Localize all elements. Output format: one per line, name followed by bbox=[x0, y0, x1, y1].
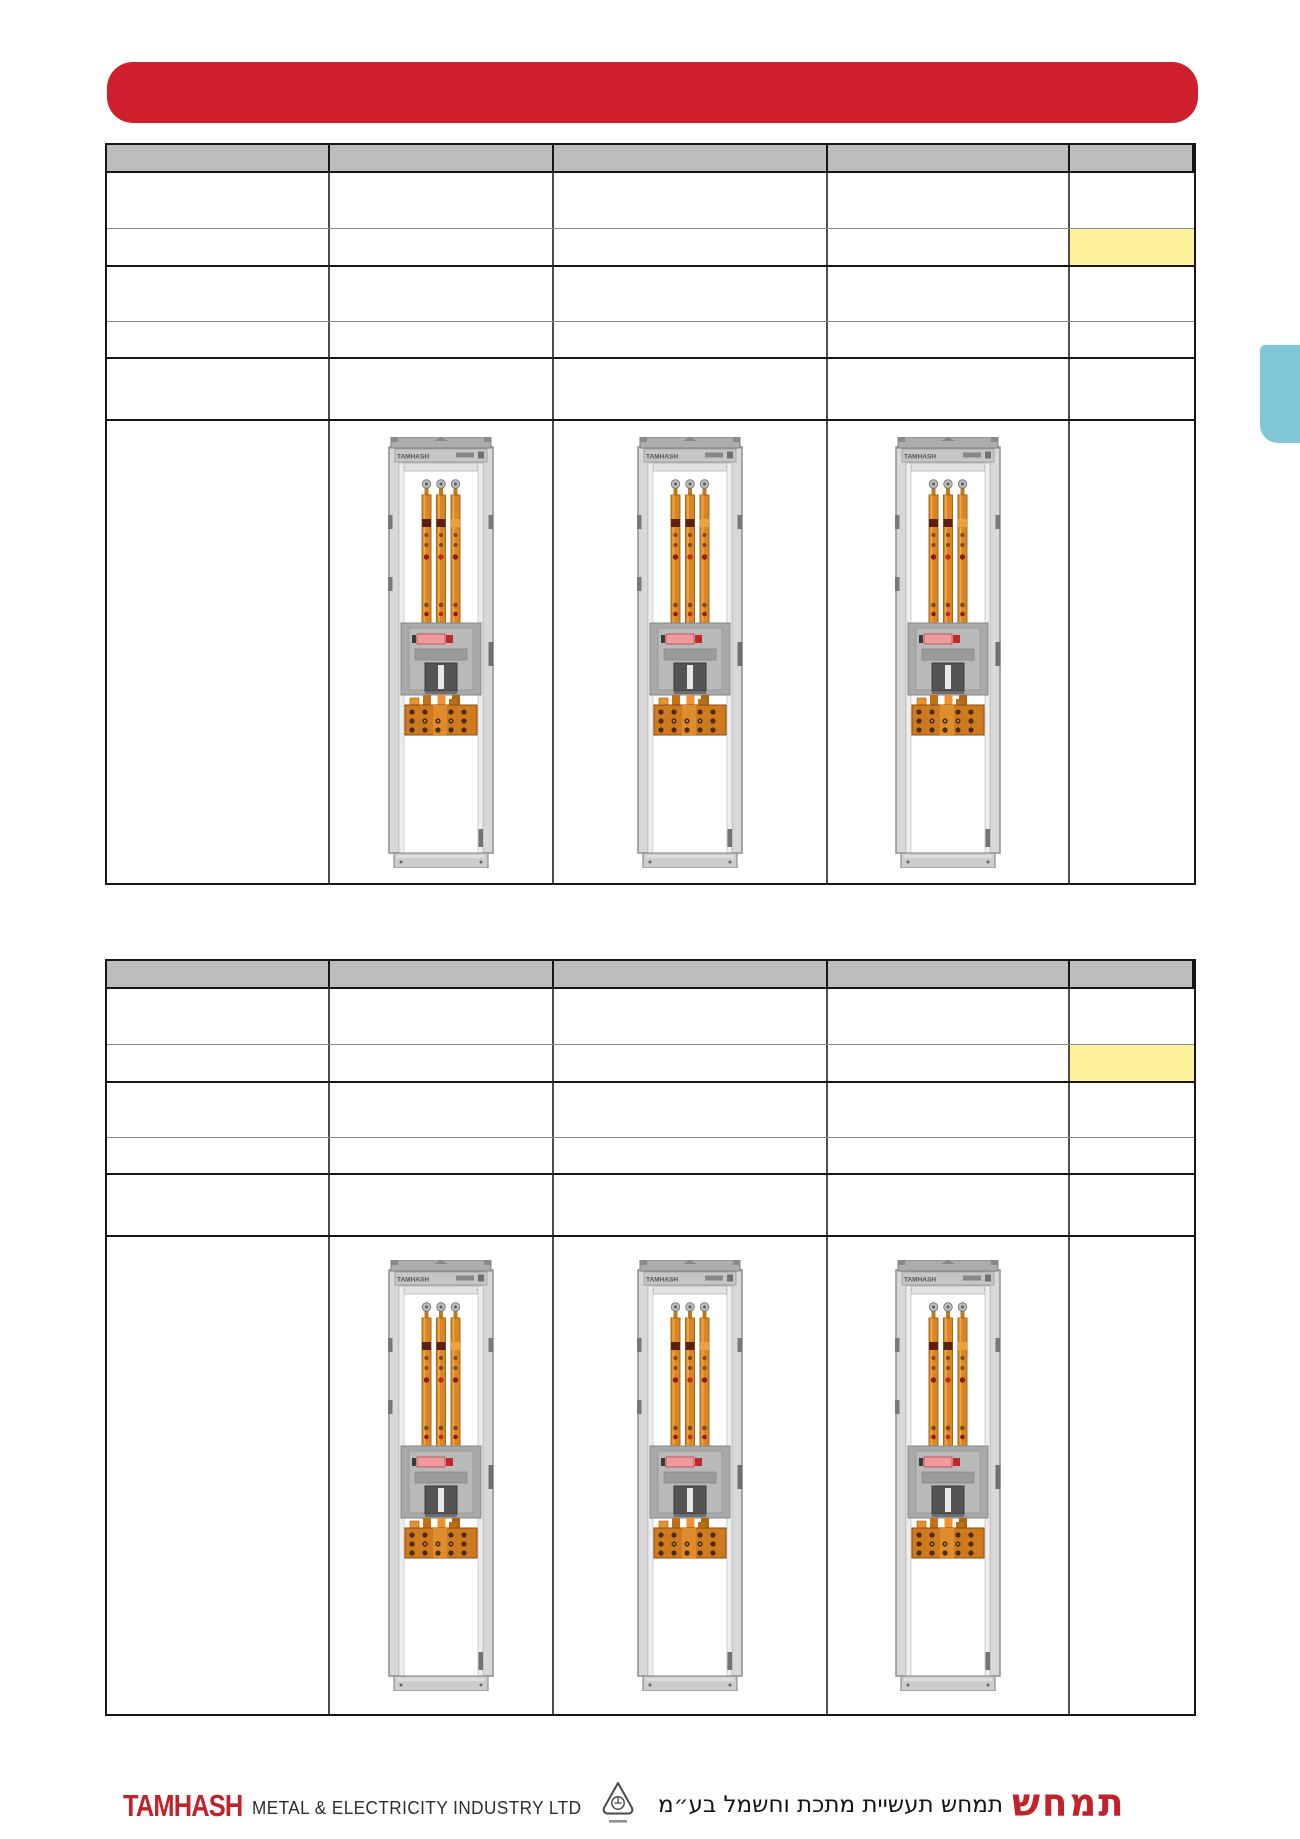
table-cell bbox=[828, 1138, 1070, 1173]
header-cell bbox=[330, 145, 554, 171]
table-cell bbox=[554, 1175, 828, 1235]
table-cell bbox=[330, 1045, 554, 1081]
table-cell bbox=[1070, 1237, 1194, 1714]
table-cell bbox=[330, 1237, 554, 1714]
table-cell bbox=[828, 1045, 1070, 1081]
table-row bbox=[107, 173, 1194, 229]
footer-company-name-he: תמחש תעשיית מתכת וחשמל בע״מ bbox=[658, 1792, 1003, 1818]
table-cell bbox=[1070, 267, 1194, 321]
table-cell bbox=[107, 1175, 330, 1235]
cabinet-product-image bbox=[388, 1260, 494, 1691]
header-cell bbox=[828, 961, 1070, 987]
table-cell bbox=[1070, 1083, 1194, 1137]
product-image-row bbox=[107, 421, 1194, 883]
table-cell bbox=[107, 173, 330, 228]
table-cell bbox=[554, 359, 828, 419]
table-cell bbox=[828, 322, 1070, 357]
table-cell bbox=[828, 359, 1070, 419]
table-cell bbox=[1070, 989, 1194, 1044]
page-edge-tab bbox=[1260, 345, 1300, 443]
table-cell bbox=[1070, 322, 1194, 357]
table-cell bbox=[828, 1175, 1070, 1235]
table-cell bbox=[330, 989, 554, 1044]
table-cell bbox=[107, 421, 330, 883]
table-cell bbox=[1070, 1175, 1194, 1235]
table-cell bbox=[330, 359, 554, 419]
table-row bbox=[107, 1175, 1194, 1237]
tamhash-logo-he: תמחש bbox=[1012, 1780, 1126, 1825]
table-row bbox=[107, 1138, 1194, 1175]
product-image-row bbox=[107, 1237, 1194, 1714]
catalog-page: TAMHASH METAL & ELECTRICITY INDUSTRY LTD… bbox=[0, 0, 1300, 1839]
cabinet-product-image bbox=[895, 437, 1001, 868]
table-cell bbox=[828, 989, 1070, 1044]
footer-company-name-en: METAL & ELECTRICITY INDUSTRY LTD bbox=[252, 1798, 581, 1819]
table-cell bbox=[330, 1083, 554, 1137]
header-cell bbox=[1070, 145, 1194, 171]
table-row bbox=[107, 989, 1194, 1045]
table-cell bbox=[1070, 1138, 1194, 1173]
table-cell bbox=[1070, 421, 1194, 883]
table-cell bbox=[330, 267, 554, 321]
table-cell bbox=[828, 229, 1070, 265]
table-cell bbox=[554, 1083, 828, 1137]
header-cell bbox=[107, 145, 330, 171]
header-cell bbox=[828, 145, 1070, 171]
table-cell bbox=[828, 1237, 1070, 1714]
table-cell bbox=[554, 1045, 828, 1081]
cabinet-product-image bbox=[637, 1260, 743, 1691]
table-cell bbox=[107, 1045, 330, 1081]
header-cell bbox=[107, 961, 330, 987]
table-row bbox=[107, 1083, 1194, 1138]
table-cell bbox=[828, 1083, 1070, 1137]
table-cell bbox=[107, 359, 330, 419]
table-cell bbox=[554, 267, 828, 321]
table-cell bbox=[554, 173, 828, 228]
cabinet-product-image bbox=[388, 437, 494, 868]
table-header-row bbox=[107, 961, 1194, 989]
table-row bbox=[107, 1045, 1194, 1083]
table-cell bbox=[828, 173, 1070, 228]
table-cell bbox=[330, 173, 554, 228]
header-cell bbox=[330, 961, 554, 987]
spec-table-top bbox=[105, 143, 1196, 885]
table-cell bbox=[107, 1237, 330, 1714]
table-cell bbox=[828, 421, 1070, 883]
table-cell bbox=[107, 267, 330, 321]
table-cell bbox=[330, 229, 554, 265]
section-title-banner bbox=[107, 62, 1198, 123]
cabinet-product-image bbox=[637, 437, 743, 868]
table-cell bbox=[107, 989, 330, 1044]
table-cell bbox=[1070, 359, 1194, 419]
table-cell bbox=[107, 229, 330, 265]
table-cell bbox=[554, 421, 828, 883]
table-cell bbox=[330, 1138, 554, 1173]
table-cell bbox=[330, 1175, 554, 1235]
header-cell bbox=[554, 145, 828, 171]
table-cell bbox=[554, 229, 828, 265]
table-cell bbox=[1070, 173, 1194, 228]
header-cell bbox=[554, 961, 828, 987]
spec-table-bottom bbox=[105, 959, 1196, 1716]
highlighted-cell bbox=[1070, 1045, 1194, 1081]
tamhash-logo-en: TAMHASH bbox=[123, 1788, 242, 1824]
table-cell bbox=[554, 322, 828, 357]
table-cell bbox=[330, 421, 554, 883]
table-header-row bbox=[107, 145, 1194, 173]
table-cell bbox=[554, 989, 828, 1044]
table-row bbox=[107, 267, 1194, 322]
table-row bbox=[107, 359, 1194, 421]
header-cell bbox=[1070, 961, 1194, 987]
cabinet-product-image bbox=[895, 1260, 1001, 1691]
standards-institute-icon bbox=[601, 1780, 635, 1828]
table-cell bbox=[828, 267, 1070, 321]
table-cell bbox=[330, 322, 554, 357]
table-cell bbox=[554, 1138, 828, 1173]
table-row bbox=[107, 322, 1194, 359]
table-cell bbox=[107, 1083, 330, 1137]
highlighted-cell bbox=[1070, 229, 1194, 265]
table-cell bbox=[107, 322, 330, 357]
table-cell bbox=[107, 1138, 330, 1173]
table-row bbox=[107, 229, 1194, 267]
table-cell bbox=[554, 1237, 828, 1714]
